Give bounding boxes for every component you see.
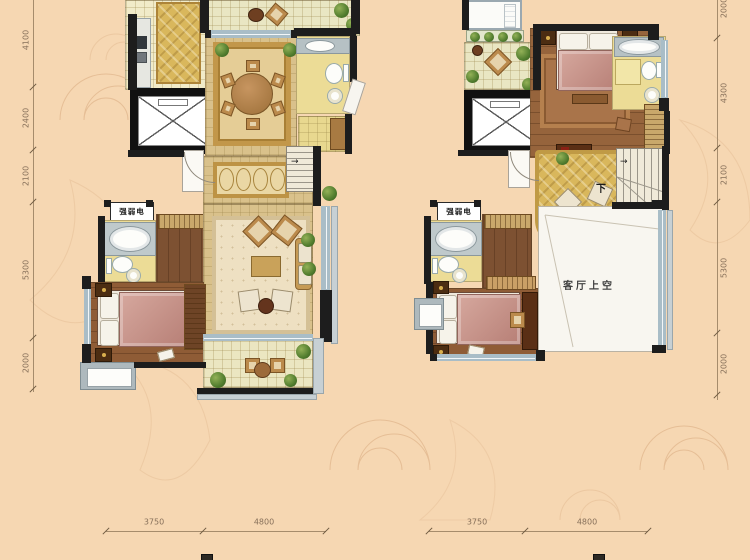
dimension-label: 4300 [720,83,729,103]
window [436,354,536,361]
elevator-door [490,101,520,108]
dimension-label: 2000 [720,354,729,374]
bathtub [435,226,477,252]
dimension-label: 2100 [22,166,31,186]
flower-box [466,30,524,42]
bed [556,30,618,90]
dining-table [231,73,273,115]
caption-stub [201,554,213,560]
plant [516,46,531,61]
nightstand [95,283,112,297]
plant [302,262,316,276]
dimension-label: 4800 [254,518,274,527]
nightstand [540,30,556,45]
wardrobe [484,214,532,229]
dimension-label: 2400 [22,108,31,128]
window [658,210,666,348]
plant [301,233,315,247]
plant [466,70,479,83]
dimension-label: 4800 [577,518,597,527]
plant [322,186,337,201]
dining-chair [246,118,260,130]
toilet [106,258,112,274]
dining-chair [246,60,260,72]
toilet-bowl [325,63,343,84]
plant [296,344,311,359]
window [84,288,91,346]
balcony-stool [270,358,285,373]
bookshelf [486,276,536,290]
bathtub [618,39,660,55]
dimension-label: 2000 [720,0,729,18]
pouf [615,117,632,132]
shower-area [615,59,641,85]
stair-down-label: 下 [596,180,606,195]
bay-window [466,0,522,30]
shower-drain-icon [644,87,660,103]
plant [283,43,297,57]
window [203,334,313,341]
shower-drain-icon [327,88,343,104]
bay-window [80,362,136,390]
wardrobe [158,214,204,229]
nightstand [95,348,112,362]
shower-drain-icon [126,268,141,283]
floorplan-canvas: → 强弱电 [0,0,750,560]
plant [210,372,226,388]
elevator [130,88,216,154]
void-area: 客厅上空 [538,206,666,352]
dimension-label: 2100 [720,165,729,185]
toilet [343,64,349,82]
stairs-up [286,146,315,192]
elevator-door [158,99,188,106]
side-table [258,298,274,314]
hallway-rug [213,162,289,198]
coffee-table [251,256,281,277]
stair-direction-arrow: → [291,158,299,167]
caption-stub [593,554,605,560]
kitchen-runner-rug [156,2,201,84]
nightstand [433,281,449,294]
stair-direction-arrow: → [620,158,628,167]
plant [215,43,229,57]
balcony-table [254,362,271,378]
shower-drain-icon [452,268,467,283]
weak-current-label: 强弱电 [119,206,145,217]
desk-chair [510,312,525,328]
dimension-label: 4100 [22,30,31,50]
window [211,30,291,38]
bay-window [414,298,444,330]
void-label: 客厅上空 [563,277,615,292]
bed [97,290,187,346]
window [661,40,668,98]
dimension-label: 5300 [720,258,729,278]
window [321,206,330,290]
bed-bench [572,94,608,104]
dimension-label: 3750 [467,518,487,527]
toilet-bowl [641,61,657,80]
dimension-label: 3750 [144,518,164,527]
plant [556,152,569,165]
bed [436,292,520,344]
flower-pot [472,45,483,56]
terrace-table [248,8,264,22]
plant [284,374,297,387]
dimension-label: 2000 [22,353,31,373]
washbasin [305,40,335,52]
toilet [432,258,438,274]
dimension-label: 5300 [22,260,31,280]
weak-current-label: 强弱电 [446,206,472,217]
plant [334,3,349,18]
bathtub [109,226,151,252]
